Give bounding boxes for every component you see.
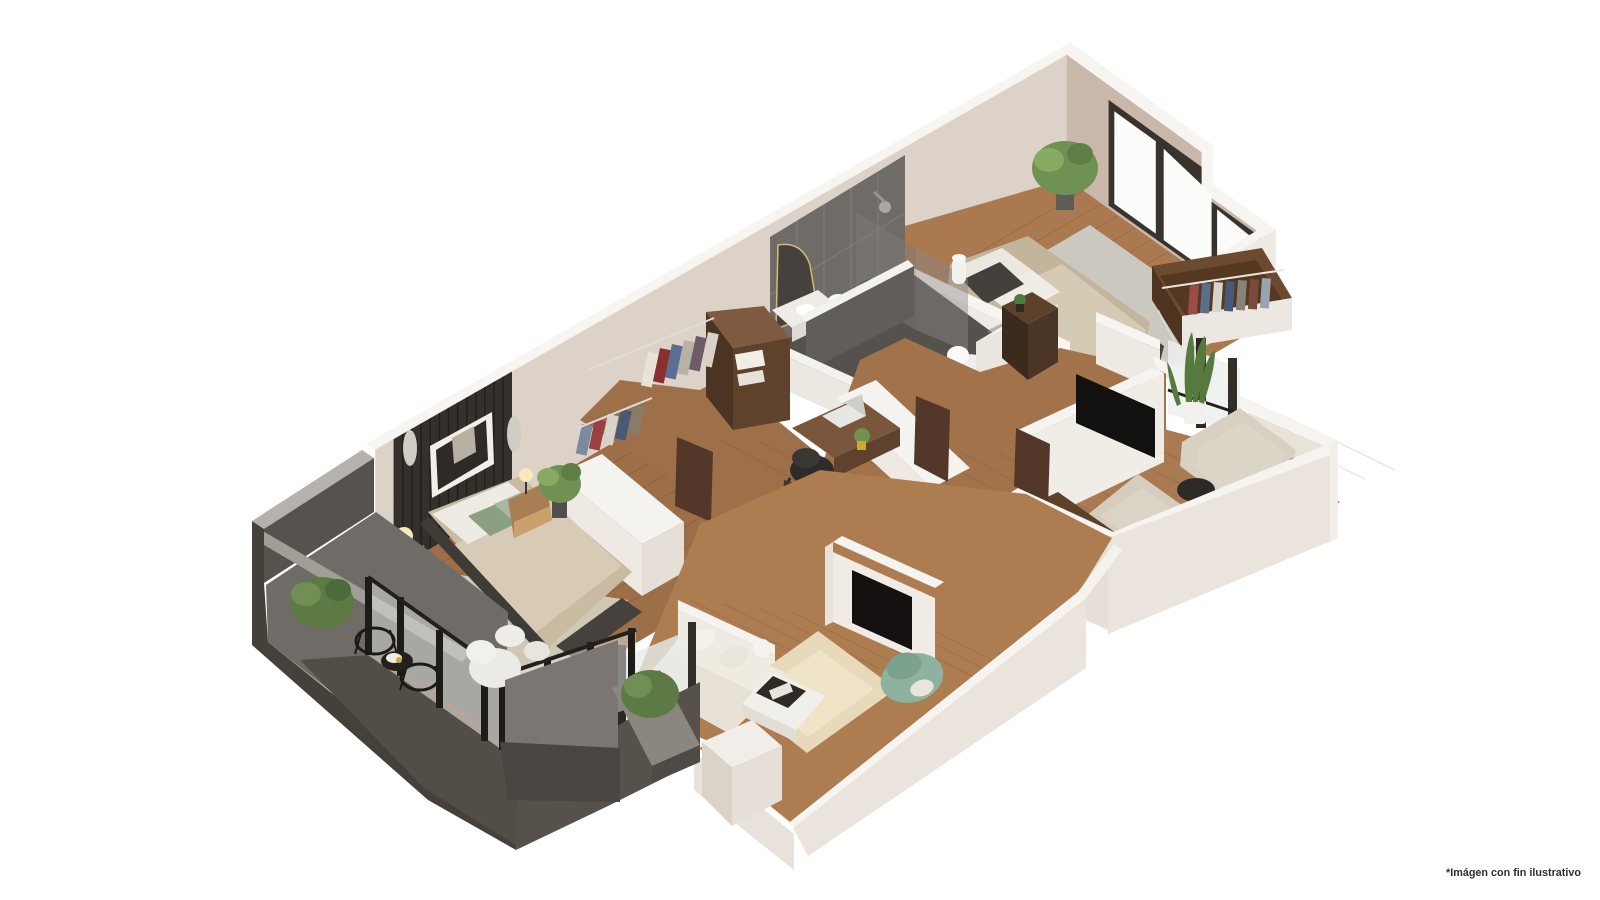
svg-text:*Imágen con fin ilustrativo: *Imágen con fin ilustrativo [1446,867,1581,879]
